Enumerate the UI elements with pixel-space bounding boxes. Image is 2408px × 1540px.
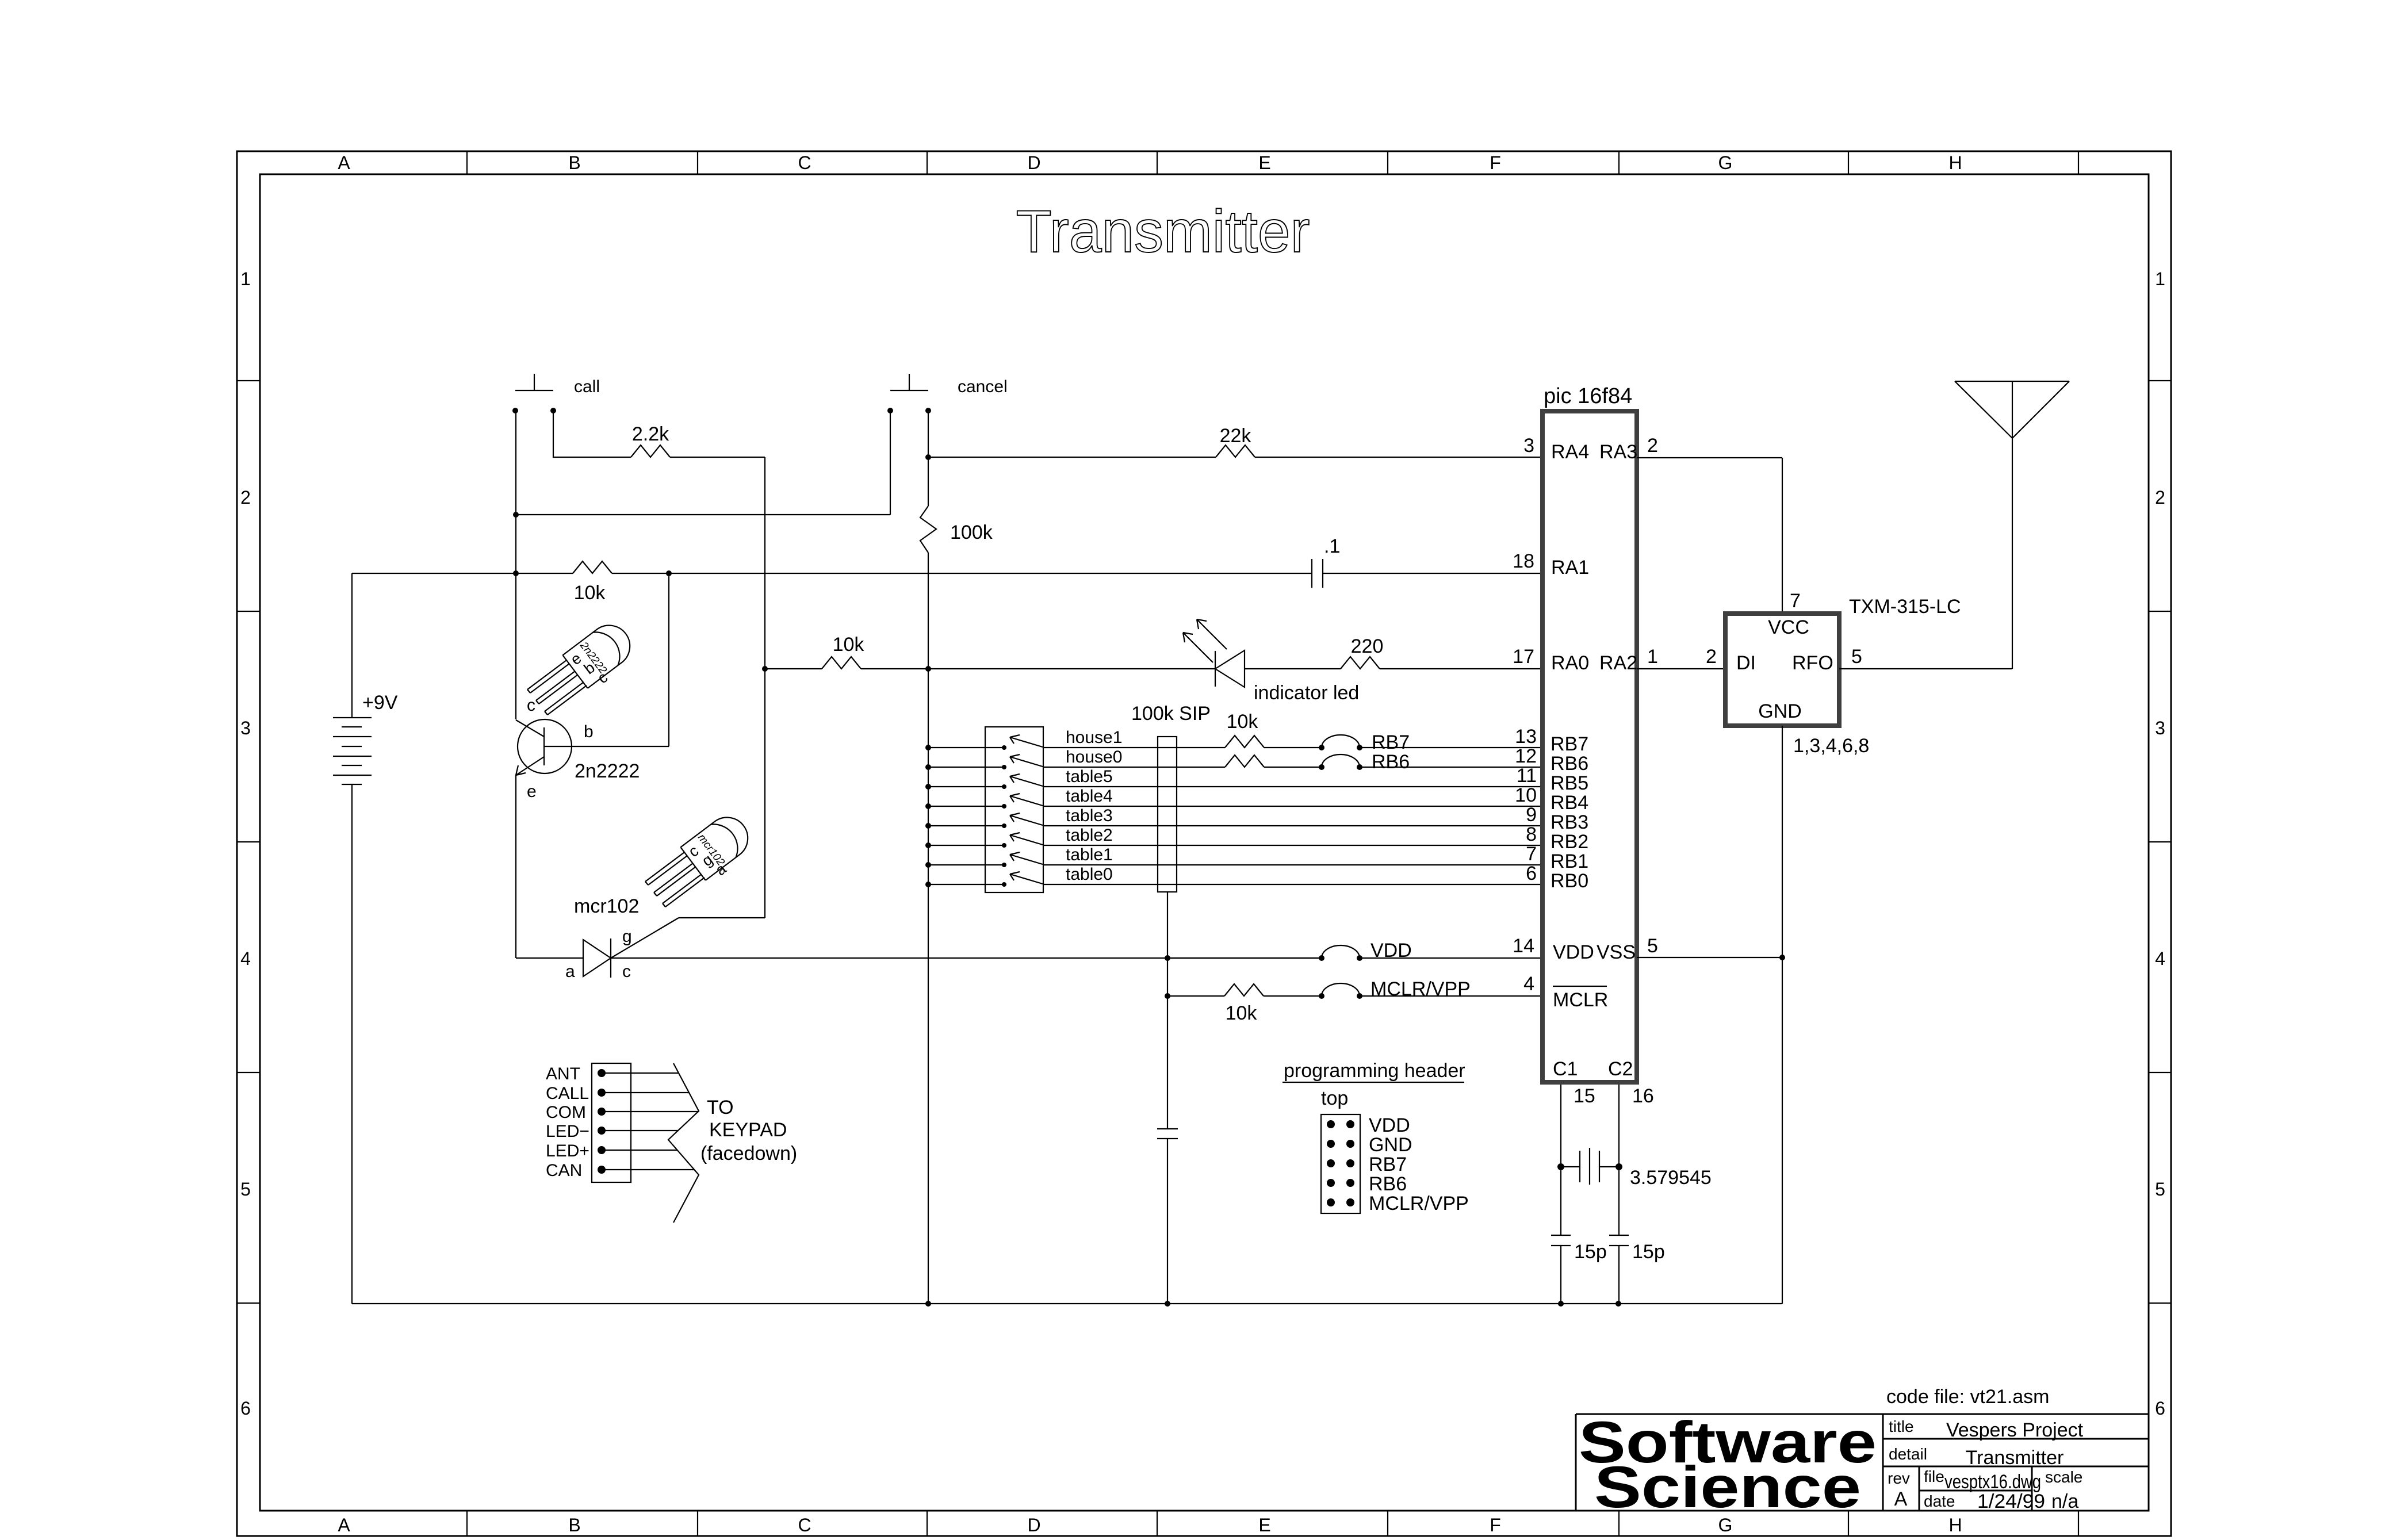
svg-text:220: 220: [1351, 635, 1384, 657]
svg-text:5: 5: [1647, 935, 1658, 957]
svg-text:RFO: RFO: [1792, 652, 1833, 674]
svg-text:C1: C1: [1553, 1058, 1578, 1080]
svg-text:VDD: VDD: [1553, 941, 1594, 963]
svg-text:KEYPAD: KEYPAD: [709, 1119, 787, 1141]
svg-text:C: C: [798, 1515, 811, 1535]
svg-text:VDD: VDD: [1369, 1114, 1410, 1136]
svg-text:GND: GND: [1758, 700, 1802, 722]
svg-text:G: G: [1718, 152, 1733, 173]
svg-text:TXM-315-LC: TXM-315-LC: [1849, 596, 1961, 618]
svg-text:RB6: RB6: [1551, 753, 1588, 775]
svg-text:4: 4: [2155, 948, 2165, 969]
svg-text:15p: 15p: [1574, 1241, 1607, 1263]
svg-text:cancel: cancel: [958, 377, 1008, 396]
svg-text:RA0: RA0: [1551, 652, 1589, 674]
svg-text:.1: .1: [1324, 535, 1340, 557]
svg-text:LED−: LED−: [546, 1122, 589, 1141]
svg-text:c: c: [527, 696, 535, 715]
svg-text:3.579545: 3.579545: [1630, 1167, 1712, 1189]
svg-text:RA4: RA4: [1551, 441, 1589, 463]
svg-text:1/24/99: 1/24/99: [1977, 1491, 2045, 1512]
svg-text:E: E: [1258, 152, 1270, 173]
svg-text:MCLR: MCLR: [1553, 989, 1608, 1011]
svg-text:15: 15: [1574, 1085, 1595, 1107]
svg-text:indicator led: indicator led: [1254, 682, 1359, 704]
svg-text:table1: table1: [1066, 845, 1113, 864]
svg-text:15p: 15p: [1632, 1241, 1665, 1263]
svg-text:table5: table5: [1066, 767, 1113, 786]
svg-text:date: date: [1924, 1492, 1955, 1510]
svg-text:22k: 22k: [1220, 425, 1252, 447]
svg-text:RB0: RB0: [1551, 870, 1588, 892]
svg-text:RA1: RA1: [1551, 557, 1589, 579]
svg-text:detail: detail: [1889, 1445, 1927, 1463]
svg-text:2.2k: 2.2k: [632, 423, 669, 445]
svg-text:vesptx16.dwg: vesptx16.dwg: [1944, 1471, 2041, 1493]
svg-text:1: 1: [1647, 646, 1658, 668]
svg-text:1: 1: [240, 269, 251, 289]
svg-text:RA2: RA2: [1599, 652, 1637, 674]
svg-text:A: A: [338, 1515, 350, 1535]
svg-text:RB1: RB1: [1551, 851, 1588, 872]
svg-text:3: 3: [240, 718, 251, 738]
svg-text:6: 6: [2155, 1398, 2165, 1419]
svg-text:RB7: RB7: [1551, 733, 1588, 755]
svg-text:2: 2: [1706, 646, 1717, 668]
svg-text:+9V: +9V: [362, 692, 398, 714]
svg-text:4: 4: [240, 948, 251, 969]
svg-text:10k: 10k: [1227, 711, 1259, 733]
svg-text:LED+: LED+: [546, 1141, 589, 1160]
svg-text:VDD: VDD: [1370, 940, 1412, 961]
svg-text:F: F: [1490, 1515, 1501, 1535]
svg-text:n/a: n/a: [2051, 1491, 2078, 1512]
svg-text:100k SIP: 100k SIP: [1131, 703, 1211, 725]
svg-text:8: 8: [1526, 823, 1537, 845]
svg-text:mcr102: mcr102: [574, 895, 639, 917]
svg-text:table4: table4: [1066, 787, 1113, 806]
svg-text:D: D: [1027, 152, 1040, 173]
svg-text:C: C: [798, 152, 811, 173]
svg-text:1,3,4,6,8: 1,3,4,6,8: [1793, 735, 1869, 757]
svg-text:12: 12: [1515, 745, 1537, 767]
svg-text:2n2222: 2n2222: [575, 760, 640, 782]
svg-text:17: 17: [1513, 646, 1534, 668]
svg-text:house1: house1: [1066, 728, 1122, 747]
svg-text:RB4: RB4: [1551, 792, 1588, 814]
svg-text:H: H: [1948, 152, 1962, 173]
svg-text:A: A: [1894, 1488, 1908, 1510]
svg-text:CALL: CALL: [546, 1084, 589, 1103]
svg-text:5: 5: [1851, 646, 1862, 668]
svg-text:E: E: [1258, 1515, 1270, 1535]
svg-text:table3: table3: [1066, 806, 1113, 825]
svg-text:4: 4: [1523, 973, 1534, 995]
svg-text:e: e: [527, 782, 537, 801]
svg-text:2: 2: [240, 487, 251, 508]
svg-text:file: file: [1924, 1468, 1944, 1485]
svg-text:A: A: [338, 152, 350, 173]
svg-text:ANT: ANT: [546, 1064, 580, 1083]
svg-text:call: call: [574, 377, 600, 396]
svg-text:6: 6: [1526, 863, 1537, 884]
svg-text:1: 1: [2155, 269, 2165, 289]
svg-text:TO: TO: [707, 1097, 734, 1118]
svg-text:MCLR/VPP: MCLR/VPP: [1369, 1193, 1469, 1215]
svg-text:title: title: [1889, 1418, 1914, 1435]
svg-text:Transmitter: Transmitter: [1016, 198, 1310, 265]
svg-text:CAN: CAN: [546, 1161, 582, 1180]
svg-text:a: a: [565, 962, 575, 981]
svg-text:c: c: [622, 962, 631, 981]
svg-text:RB6: RB6: [1372, 751, 1410, 773]
svg-text:RA3: RA3: [1599, 441, 1637, 463]
svg-text:house0: house0: [1066, 748, 1122, 767]
svg-text:D: D: [1027, 1515, 1040, 1535]
svg-text:MCLR/VPP: MCLR/VPP: [1370, 978, 1471, 1000]
svg-text:11: 11: [1517, 765, 1537, 787]
svg-text:B: B: [568, 1515, 580, 1535]
svg-text:rev: rev: [1888, 1469, 1910, 1487]
svg-text:100k: 100k: [950, 522, 993, 543]
svg-text:3: 3: [1523, 435, 1534, 457]
svg-text:13: 13: [1515, 726, 1537, 748]
svg-text:F: F: [1490, 152, 1501, 173]
svg-text:7: 7: [1526, 843, 1537, 865]
svg-text:Vespers Project: Vespers Project: [1946, 1419, 2084, 1441]
svg-text:10k: 10k: [1226, 1002, 1258, 1024]
svg-text:Science: Science: [1594, 1454, 1861, 1520]
svg-text:10: 10: [1515, 784, 1537, 806]
svg-text:COM: COM: [546, 1103, 586, 1122]
svg-text:RB7: RB7: [1372, 731, 1410, 753]
svg-text:14: 14: [1513, 935, 1534, 957]
svg-text:scale: scale: [2045, 1468, 2082, 1486]
svg-text:(facedown): (facedown): [700, 1143, 797, 1164]
svg-text:H: H: [1948, 1515, 1962, 1535]
svg-text:RB2: RB2: [1551, 831, 1588, 853]
svg-text:Transmitter: Transmitter: [1966, 1447, 2064, 1469]
svg-text:7: 7: [1790, 590, 1801, 612]
svg-text:C2: C2: [1608, 1058, 1633, 1080]
svg-text:VCC: VCC: [1768, 616, 1809, 638]
svg-text:RB7: RB7: [1369, 1154, 1407, 1175]
svg-text:18: 18: [1513, 550, 1534, 572]
svg-text:RB6: RB6: [1369, 1173, 1407, 1195]
svg-text:B: B: [568, 152, 580, 173]
svg-text:3: 3: [2155, 718, 2165, 738]
svg-text:5: 5: [240, 1179, 251, 1200]
svg-text:9: 9: [1526, 804, 1537, 826]
svg-text:table2: table2: [1066, 826, 1113, 845]
svg-text:b: b: [584, 722, 594, 741]
svg-text:VSS: VSS: [1597, 941, 1636, 963]
svg-text:GND: GND: [1369, 1134, 1412, 1156]
svg-text:2: 2: [2155, 487, 2165, 508]
svg-text:table0: table0: [1066, 865, 1113, 884]
svg-text:DI: DI: [1736, 652, 1756, 674]
svg-text:RB3: RB3: [1551, 811, 1588, 833]
svg-text:5: 5: [2155, 1179, 2165, 1200]
svg-text:programming header: programming header: [1284, 1060, 1465, 1082]
svg-text:g: g: [622, 927, 632, 946]
svg-text:10k: 10k: [833, 634, 865, 656]
svg-text:code file: vt21.asm: code file: vt21.asm: [1886, 1386, 2049, 1408]
svg-text:6: 6: [240, 1398, 251, 1419]
svg-text:top: top: [1321, 1087, 1348, 1109]
svg-text:16: 16: [1632, 1085, 1654, 1107]
svg-text:2: 2: [1647, 435, 1658, 457]
svg-text:10k: 10k: [574, 582, 606, 604]
svg-text:pic 16f84: pic 16f84: [1544, 384, 1632, 408]
svg-text:RB5: RB5: [1551, 772, 1588, 794]
